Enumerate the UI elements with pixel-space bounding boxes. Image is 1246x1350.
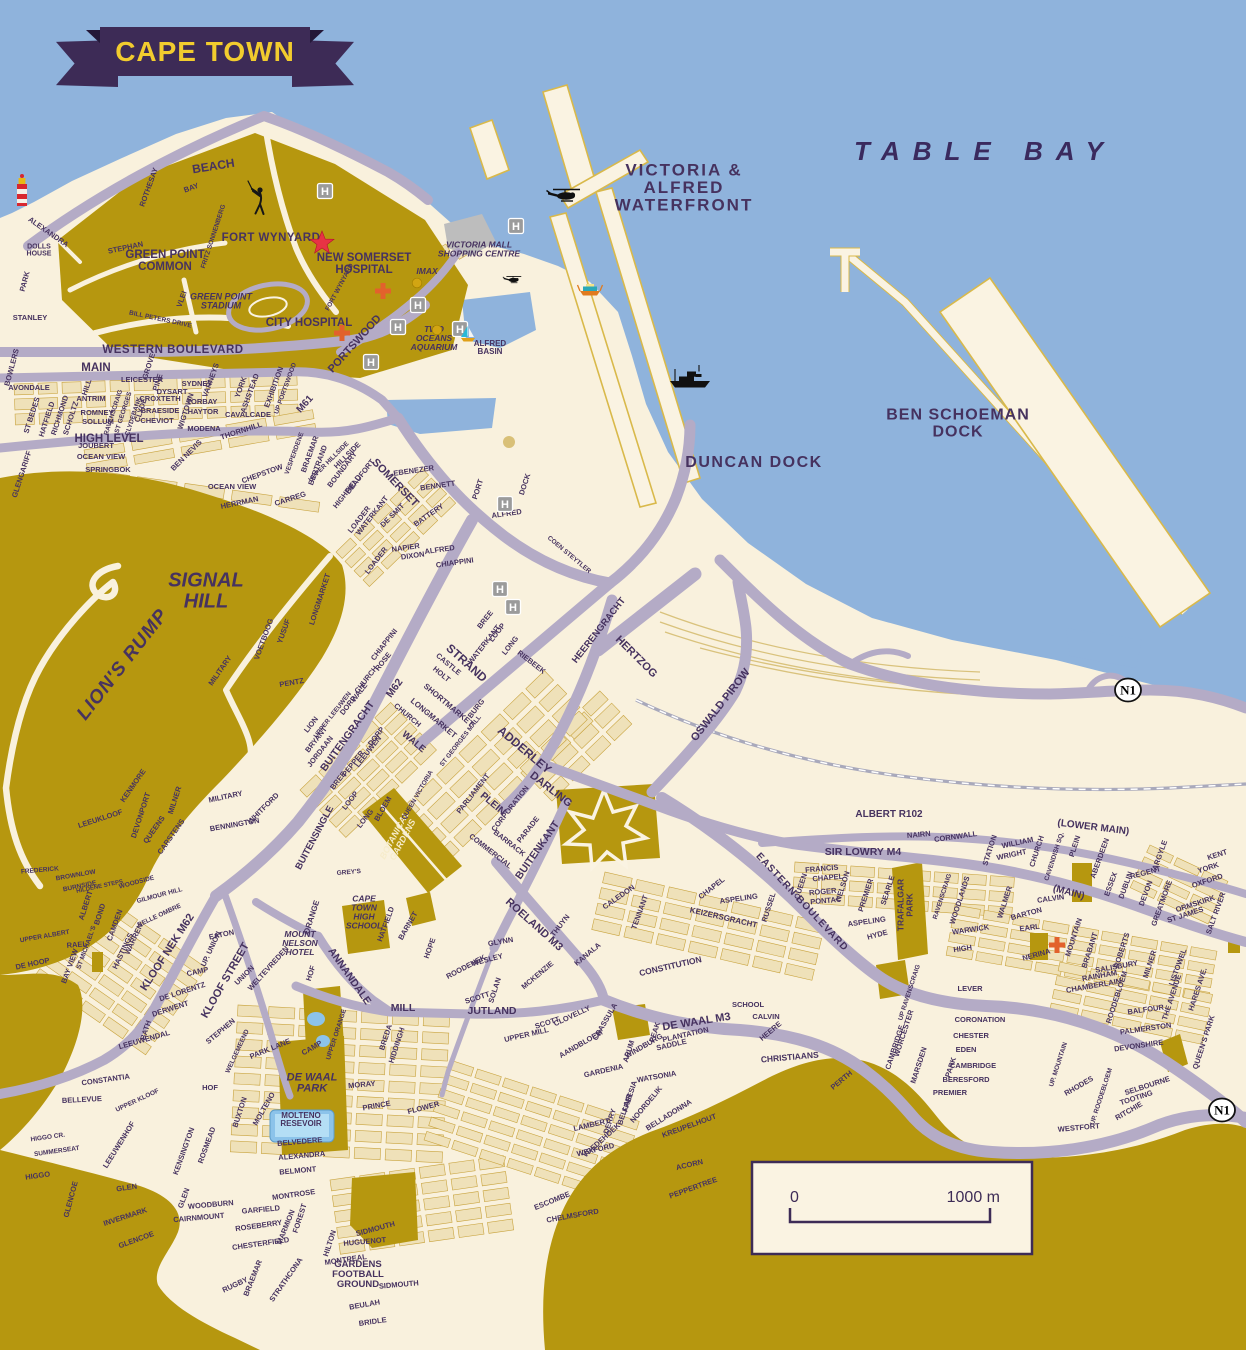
map-label-premier: PREMIER xyxy=(933,1088,968,1097)
map-label-antrim: ANTRIM xyxy=(76,394,105,403)
map-label-haytor: HAYTOR xyxy=(188,407,219,416)
map-label-dolls-house: DOLLSHOUSE xyxy=(27,243,52,257)
map-label-jutland: JUTLAND xyxy=(468,1005,517,1017)
helipad-letter: H xyxy=(509,602,517,614)
map-label-chester: CHESTER xyxy=(953,1031,989,1040)
map-label-braeside: BRAESIDE xyxy=(141,406,180,415)
map-label-sir-lowry-m4: SIR LOWRY M4 xyxy=(825,846,902,858)
poi-dot-marker xyxy=(432,325,442,335)
tamboerskloof-block xyxy=(92,952,103,972)
helipad-marker: H xyxy=(391,320,406,335)
ribbon-fold-right xyxy=(308,30,324,45)
helipad-letter: H xyxy=(512,221,520,233)
helipad-marker: H xyxy=(506,600,521,615)
map-label-school: SCHOOL xyxy=(732,1000,765,1009)
map-label-ocean-view: OCEAN VIEW xyxy=(77,452,126,461)
map-label-city-hospital: CITY HOSPITAL xyxy=(266,317,352,329)
map-label-main: MAIN xyxy=(81,362,110,374)
map-label-coronation: CORONATION xyxy=(955,1015,1006,1024)
pond-1 xyxy=(307,1012,325,1026)
helipad-marker: H xyxy=(411,298,426,313)
helipad-marker: H xyxy=(493,582,508,597)
helipad-marker: H xyxy=(509,219,524,234)
map-label-cheviot: CHEVIOT xyxy=(140,416,174,425)
helipad-letter: H xyxy=(394,322,402,334)
map-label-albert-r102: ALBERT R102 xyxy=(855,809,923,820)
map-label-alfred-basin: ALFREDBASIN xyxy=(474,339,507,356)
map-label-duncan-dock: DUNCAN DOCK xyxy=(685,454,822,471)
map-label-molteno-resevoir: MOLTENORESEVOIR xyxy=(280,1111,322,1128)
map-canvas: 0 1000 m TABLE BAYVICTORIA &ALFREDWATERF… xyxy=(0,0,1246,1350)
map-label-mill: MILL xyxy=(391,1002,416,1014)
helipad-letter: H xyxy=(321,186,329,198)
map-label-imax: IMAX xyxy=(416,266,439,276)
cape-town-map-page: 0 1000 m TABLE BAYVICTORIA &ALFREDWATERF… xyxy=(0,0,1246,1350)
helipad-marker: H xyxy=(364,355,379,370)
map-label-western-boulevard: WESTERN BOULEVARD xyxy=(102,344,243,356)
road-badge-marker: N1 xyxy=(1115,679,1141,702)
map-label-ocean-view: OCEAN VIEW xyxy=(208,482,257,491)
map-label-hof: HOF xyxy=(202,1083,218,1092)
waterfront-roundabout xyxy=(503,436,515,448)
map-label-victoria-mall-shopping-centre: VICTORIA MALLSHOPPING CENTRE xyxy=(438,240,521,259)
scale-zero-label: 0 xyxy=(790,1189,799,1206)
road-badge-marker: N1 xyxy=(1209,1099,1235,1122)
helipad-marker: H xyxy=(318,184,333,199)
poi-dot-marker xyxy=(412,278,422,288)
map-label-fort-wynyard: FORT WYNYARD xyxy=(222,232,321,244)
road-badge-text: N1 xyxy=(1214,1103,1230,1118)
map-label-lever: LEVER xyxy=(957,984,983,993)
ribbon-plate: CAPE TOWN xyxy=(100,27,310,76)
title-ribbon: CAPE TOWN xyxy=(0,0,420,120)
map-label-cavalcade: CAVALCADE xyxy=(225,410,271,419)
map-label-springbok: SPRINGBOK xyxy=(85,465,131,474)
map-label-modena: MODENA xyxy=(187,424,221,433)
map-label-table-bay: TABLE BAY xyxy=(854,136,1116,166)
helipad-letter: H xyxy=(367,357,375,369)
helipad-marker: H xyxy=(498,497,513,512)
scale-max-label: 1000 m xyxy=(947,1189,1000,1206)
scale-bar: 0 1000 m xyxy=(752,1162,1032,1254)
road-badge-text: N1 xyxy=(1120,683,1136,698)
map-label-stanley: STANLEY xyxy=(13,313,47,322)
map-label-eden: EDEN xyxy=(956,1045,977,1054)
helipad-letter: H xyxy=(496,584,504,596)
helipad-letter: H xyxy=(501,499,509,511)
helipad-letter: H xyxy=(414,300,422,312)
page-title: CAPE TOWN xyxy=(115,36,295,68)
map-label-joubert: JOUBERT xyxy=(78,441,114,450)
map-label-croxteth: CROXTETH xyxy=(139,394,180,403)
map-label-avondale: AVONDALE xyxy=(8,383,50,392)
